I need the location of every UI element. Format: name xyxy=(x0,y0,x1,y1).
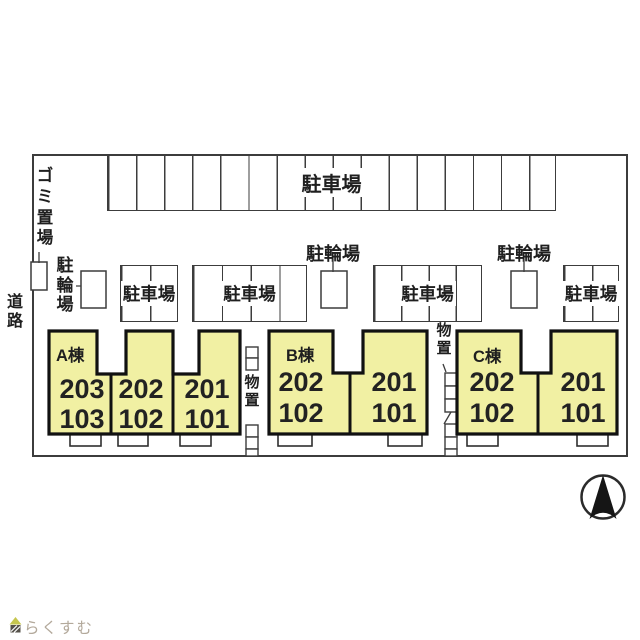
building-a-label: A棟 xyxy=(56,342,84,366)
logo-house-icon xyxy=(10,617,22,633)
site-plan: 道路 ゴミ置場 駐輪場 駐車場 駐車場 駐車場 駐車場 駐車場 駐輪場 駐輪場 xyxy=(0,0,640,640)
north-compass-icon xyxy=(582,475,625,519)
storage-label-1: 物置 xyxy=(244,374,260,410)
room-number: 201 xyxy=(175,375,239,404)
room-number: 101 xyxy=(362,399,426,428)
storage-boxes-2 xyxy=(445,373,457,456)
room-number: 201 xyxy=(362,368,426,397)
room-number: 203 xyxy=(50,375,114,404)
storage-label-2: 物置 xyxy=(436,322,452,358)
room-number: 103 xyxy=(50,405,114,434)
room-number: 102 xyxy=(460,399,524,428)
garbage-bin-box xyxy=(31,262,47,290)
bicycle-area-box-3 xyxy=(511,271,537,308)
room-number: 101 xyxy=(175,405,239,434)
bicycle-area-box-1 xyxy=(81,271,106,308)
bicycle-area-box-2 xyxy=(321,271,347,308)
room-number: 102 xyxy=(109,405,173,434)
building-b-label: B棟 xyxy=(286,342,314,366)
room-number: 201 xyxy=(551,368,615,397)
room-number: 202 xyxy=(109,375,173,404)
room-number: 202 xyxy=(460,368,524,397)
plan-linework xyxy=(0,0,640,640)
room-number: 102 xyxy=(269,399,333,428)
room-number: 202 xyxy=(269,368,333,397)
building-c-label: C棟 xyxy=(473,343,501,367)
logo-text: らくすむ xyxy=(24,616,94,638)
room-number: 101 xyxy=(551,399,615,428)
